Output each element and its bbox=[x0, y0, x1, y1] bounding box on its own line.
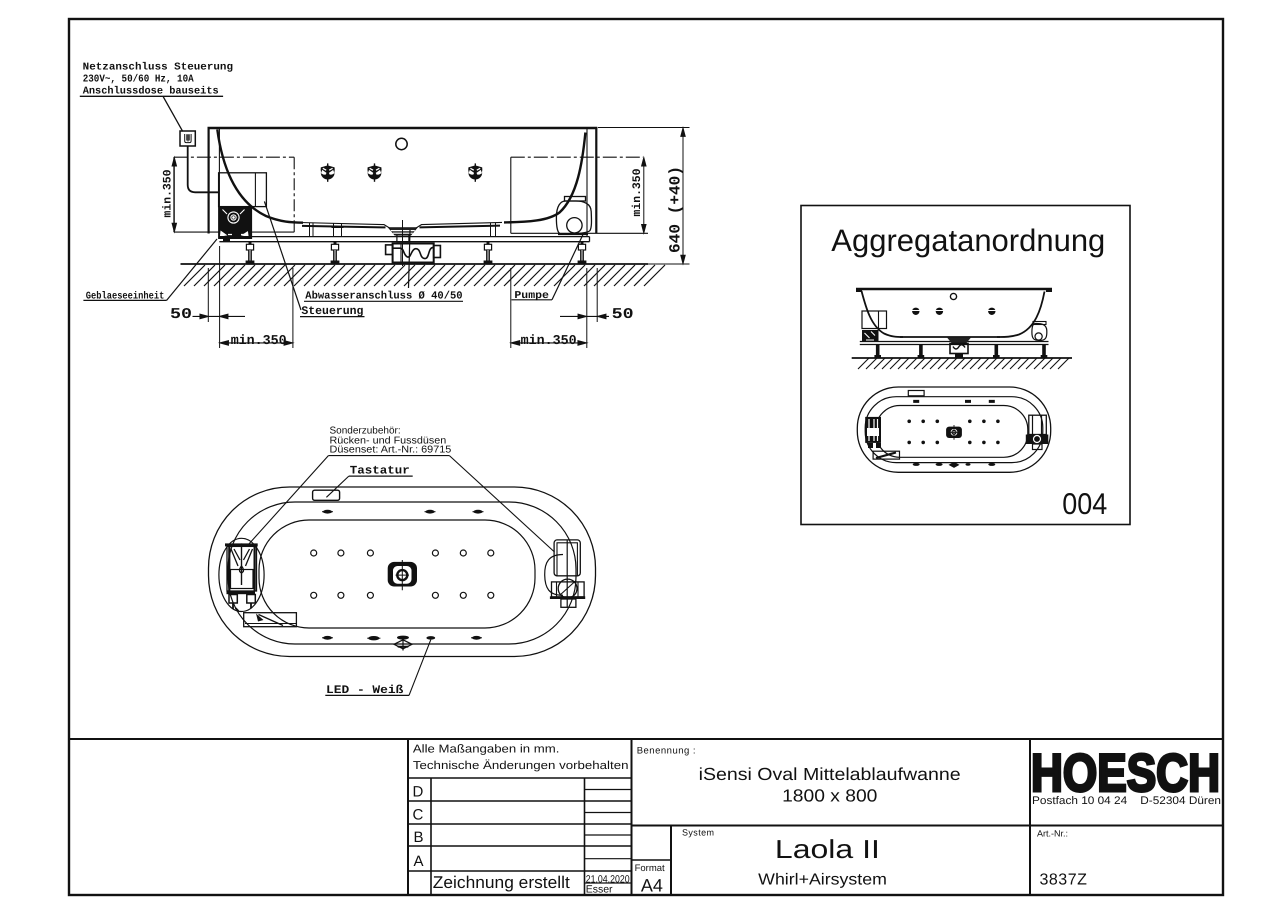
svg-text:50: 50 bbox=[170, 306, 192, 323]
svg-text:Format: Format bbox=[635, 863, 665, 874]
svg-text:Technische Änderungen vorbehal: Technische Änderungen vorbehalten bbox=[413, 759, 629, 772]
svg-text:Esser: Esser bbox=[586, 884, 613, 896]
svg-text:Benennung :: Benennung : bbox=[637, 745, 696, 756]
svg-text:min.350: min.350 bbox=[162, 169, 175, 217]
svg-text:Whirl+Airsystem: Whirl+Airsystem bbox=[758, 872, 887, 889]
svg-text:Aggregatanordnung: Aggregatanordnung bbox=[831, 223, 1105, 258]
svg-text:Alle Maßangaben in mm.: Alle Maßangaben in mm. bbox=[413, 744, 560, 756]
svg-text:Steuerung: Steuerung bbox=[301, 305, 363, 318]
svg-text:HOESCH: HOESCH bbox=[1031, 744, 1220, 803]
svg-text:Postfach 10 04 24 D-52304 D: Postfach 10 04 24 D-52304 Düren bbox=[1032, 795, 1221, 807]
svg-text:B: B bbox=[414, 829, 424, 846]
svg-text:3837Z: 3837Z bbox=[1040, 872, 1088, 889]
svg-text:C: C bbox=[413, 807, 424, 824]
svg-text:Art.-Nr.:: Art.-Nr.: bbox=[1037, 829, 1068, 839]
svg-text:A4: A4 bbox=[641, 876, 663, 896]
svg-text:Düsenset: Art.-Nr.: 69715: Düsenset: Art.-Nr.: 69715 bbox=[330, 445, 452, 456]
svg-text:System: System bbox=[682, 828, 714, 838]
svg-text:Laola II: Laola II bbox=[775, 834, 880, 864]
svg-text:50: 50 bbox=[612, 306, 634, 323]
svg-text:min.350: min.350 bbox=[521, 334, 577, 349]
svg-text:Zeichnung erstellt: Zeichnung erstellt bbox=[433, 873, 570, 892]
svg-text:230V~, 50/60 Hz, 10A: 230V~, 50/60 Hz, 10A bbox=[83, 74, 195, 86]
svg-text:Netzanschluss Steuerung: Netzanschluss Steuerung bbox=[83, 62, 233, 74]
svg-text:1800 x 800: 1800 x 800 bbox=[782, 786, 878, 806]
svg-text:min.350: min.350 bbox=[631, 168, 644, 216]
svg-text:A: A bbox=[414, 853, 424, 870]
svg-text:640 (+40): 640 (+40) bbox=[667, 166, 685, 253]
svg-text:iSensi Oval Mittelablaufwanne: iSensi Oval Mittelablaufwanne bbox=[699, 764, 961, 784]
svg-text:004: 004 bbox=[1062, 488, 1107, 521]
svg-text:min.350: min.350 bbox=[231, 334, 287, 349]
svg-text:D: D bbox=[413, 784, 424, 801]
